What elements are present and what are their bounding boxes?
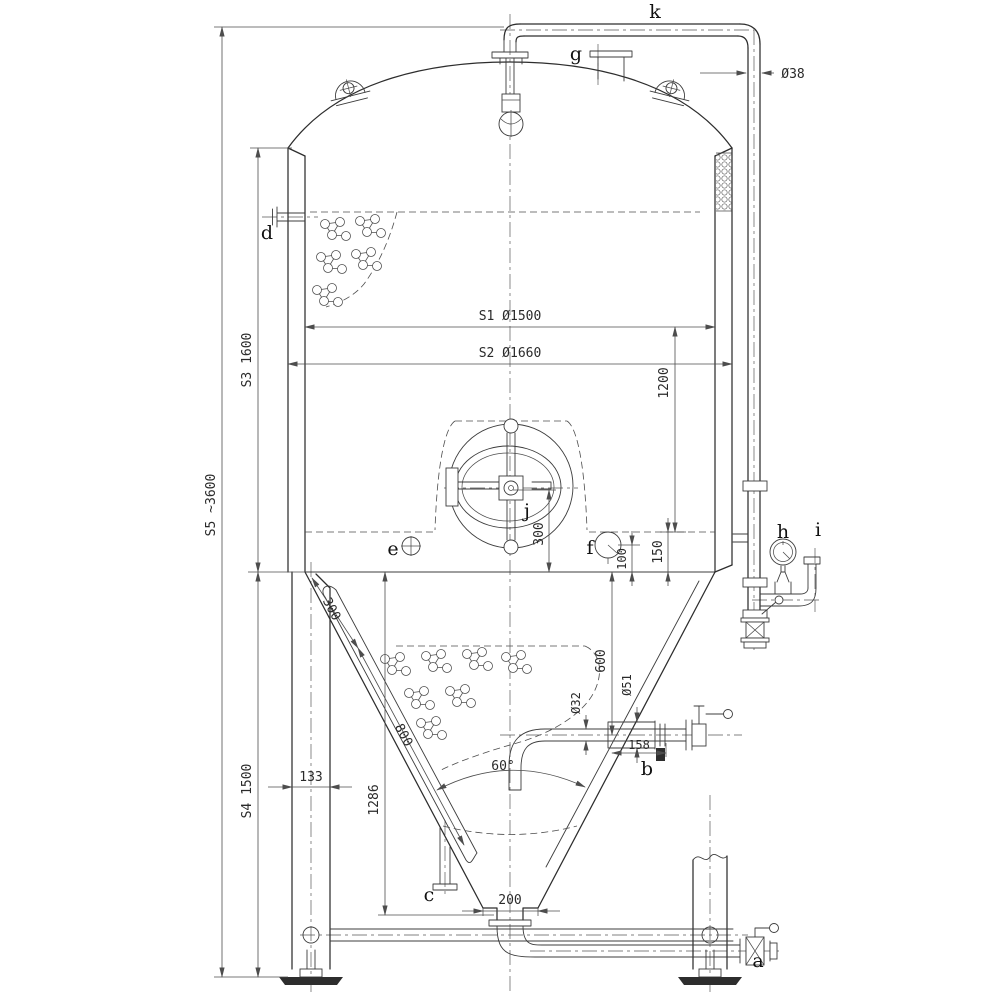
jacket-stub (733, 534, 748, 542)
port-label-a: a (752, 950, 763, 972)
foot-pad-right (678, 977, 742, 985)
dim-133: 133 (299, 770, 322, 785)
bottom-valve-k (741, 596, 783, 648)
dim-s1: S1 Ø1500 (479, 309, 542, 324)
tank-body (279, 62, 742, 985)
port-g (590, 51, 632, 81)
drawing-sheet: S1 Ø1500 S2 Ø1660 S3 1600 S4 1500 S5 ~36… (0, 0, 1000, 1000)
racking-port-b (509, 706, 733, 790)
port-label-f: f (586, 537, 595, 559)
dim-150: 150 (651, 540, 666, 563)
dimension-lines (214, 27, 774, 977)
port-label-b: b (641, 758, 653, 780)
dim-top-pipe: Ø38 (781, 67, 804, 82)
dim-dia32: Ø32 (569, 692, 583, 714)
dim-dia51: Ø51 (620, 674, 634, 696)
port-label-h: h (777, 521, 789, 543)
pressure-gauge (770, 539, 796, 594)
lifting-lug-left (327, 75, 371, 107)
port-label-d: d (261, 222, 273, 244)
dim-s5: S5 ~3600 (204, 474, 219, 537)
dim-100: 100 (615, 548, 629, 570)
dim-s2: S2 Ø1660 (479, 346, 542, 361)
dim-60deg: 60° (491, 759, 514, 774)
port-label-g: g (570, 43, 582, 65)
port-label-e: e (387, 538, 398, 560)
dim-1200: 1200 (657, 367, 672, 398)
dim-cone-300: 300 (319, 595, 343, 623)
bottom-piping (330, 924, 779, 966)
technical-drawing: S1 Ø1500 S2 Ø1660 S3 1600 S4 1500 S5 ~36… (0, 0, 1000, 1000)
port-labels: a b c d e f g h i j k (261, 1, 821, 972)
honeycomb-jacket-section (716, 153, 732, 211)
dim-158: 158 (628, 738, 650, 752)
lifting-lug-right (649, 75, 693, 107)
dimple-jacket-upper (310, 212, 700, 307)
foot-pad-left (279, 977, 343, 985)
dim-200: 200 (498, 893, 521, 908)
dim-300-manway: 300 (532, 522, 547, 545)
dim-s3: S3 1600 (240, 333, 255, 388)
dim-s4: S4 1500 (240, 764, 255, 819)
top-cip-pipe (504, 24, 767, 610)
port-label-c: c (424, 884, 435, 906)
port-e (401, 536, 421, 556)
port-label-j: j (522, 500, 530, 522)
gauge-assembly (741, 539, 820, 648)
dim-cone-800: 800 (391, 721, 415, 749)
dim-1286: 1286 (367, 784, 382, 815)
centerlines (262, 14, 822, 995)
port-label-k: k (649, 1, 661, 23)
dim-600: 600 (594, 649, 609, 672)
port-label-i: i (815, 519, 821, 541)
